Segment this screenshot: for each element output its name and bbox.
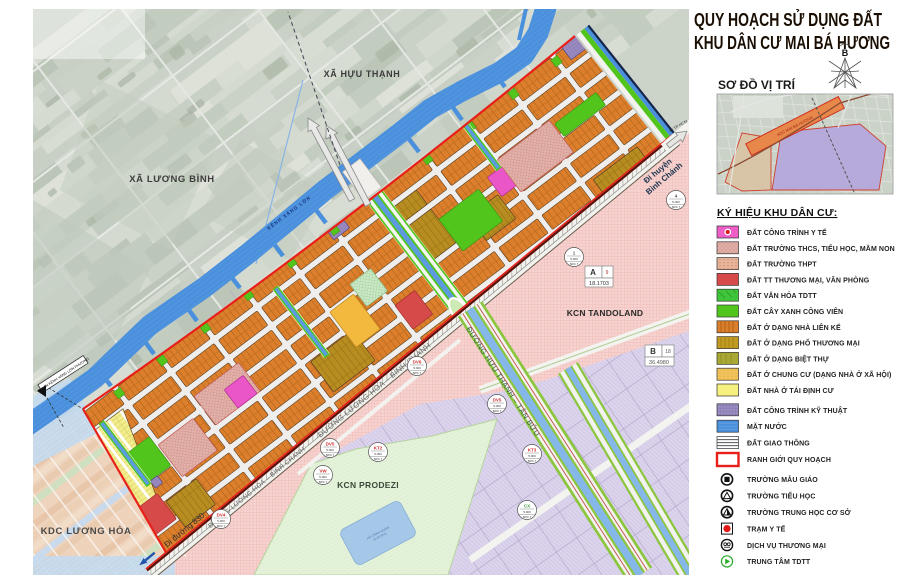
svg-text:9: 9	[606, 270, 609, 276]
svg-text:TRUNG TÂM TDTT: TRUNG TÂM TDTT	[747, 557, 811, 566]
svg-text:5.000: 5.000	[413, 366, 421, 370]
svg-text:60% 7: 60% 7	[217, 524, 226, 528]
svg-text:60% 7: 60% 7	[523, 515, 532, 519]
svg-text:60% 7: 60% 7	[374, 457, 383, 461]
svg-text:5.000: 5.000	[523, 510, 531, 514]
svg-text:5.000: 5.000	[217, 519, 225, 523]
svg-text:DV6: DV6	[413, 360, 422, 365]
svg-text:VW: VW	[319, 469, 327, 474]
svg-text:60% 7: 60% 7	[528, 459, 537, 463]
svg-text:5.000: 5.000	[326, 448, 334, 452]
svg-text:DV5: DV5	[326, 442, 335, 447]
svg-text:MẶT NƯỚC: MẶT NƯỚC	[747, 422, 787, 431]
svg-text:60% 7: 60% 7	[672, 205, 681, 209]
svg-text:DV4: DV4	[217, 513, 226, 518]
svg-text:B: B	[842, 48, 849, 58]
svg-text:DỊCH VỤ THƯƠNG MẠI: DỊCH VỤ THƯƠNG MẠI	[747, 543, 826, 550]
svg-text:60% 7: 60% 7	[319, 480, 328, 484]
svg-text:KT2: KT2	[374, 446, 383, 451]
svg-text:5.000: 5.000	[493, 404, 501, 408]
svg-text:A: A	[590, 268, 596, 277]
svg-text:KCN TANDOLAND: KCN TANDOLAND	[567, 308, 644, 318]
svg-text:5.000: 5.000	[374, 452, 382, 456]
svg-text:5.000: 5.000	[528, 454, 536, 458]
svg-text:60% 7: 60% 7	[570, 262, 579, 266]
svg-text:KCN PRODEZI: KCN PRODEZI	[337, 480, 399, 490]
svg-text:60% 7: 60% 7	[413, 371, 422, 375]
svg-text:DV5: DV5	[493, 398, 502, 403]
svg-text:KHU DÂN CƯ MAI BÁ HƯƠNG: KHU DÂN CƯ MAI BÁ HƯƠNG	[694, 32, 890, 53]
svg-text:TRƯỜNG MẪU GIÁO: TRƯỜNG MẪU GIÁO	[747, 475, 818, 484]
svg-text:36.4980: 36.4980	[649, 360, 669, 366]
svg-text:TRƯỜNG TIỂU HỌC: TRƯỜNG TIỂU HỌC	[747, 492, 816, 501]
svg-text:KDC LƯƠNG HÒA: KDC LƯƠNG HÒA	[41, 525, 132, 537]
svg-text:QUY HOẠCH SỬ DỤNG ĐẤT: QUY HOẠCH SỬ DỤNG ĐẤT	[694, 9, 883, 30]
svg-text:KT3: KT3	[528, 448, 537, 453]
svg-text:B: B	[650, 347, 656, 356]
svg-text:TRƯỜNG TRUNG HỌC CƠ SỞ: TRƯỜNG TRUNG HỌC CƠ SỞ	[747, 508, 851, 517]
svg-text:5.000: 5.000	[672, 200, 680, 204]
svg-text:RANH GIỚI QUY HOẠCH: RANH GIỚI QUY HOẠCH	[747, 455, 831, 464]
svg-text:18: 18	[665, 349, 671, 355]
svg-text:5.000: 5.000	[319, 475, 327, 479]
svg-text:CX: CX	[524, 504, 530, 509]
svg-text:KÝ HIỆU KHU DÂN CƯ:: KÝ HIỆU KHU DÂN CƯ:	[717, 206, 837, 219]
svg-text:SƠ ĐỒ VỊ TRÍ: SƠ ĐỒ VỊ TRÍ	[718, 77, 796, 92]
svg-text:18.1703: 18.1703	[589, 281, 609, 287]
svg-text:XÃ LƯƠNG BÌNH: XÃ LƯƠNG BÌNH	[129, 174, 215, 185]
svg-text:60% 7: 60% 7	[493, 409, 502, 413]
svg-text:60% 7: 60% 7	[326, 453, 335, 457]
svg-text:XÃ HỰU THẠNH: XÃ HỰU THẠNH	[324, 69, 401, 79]
svg-text:5.000: 5.000	[570, 257, 578, 261]
